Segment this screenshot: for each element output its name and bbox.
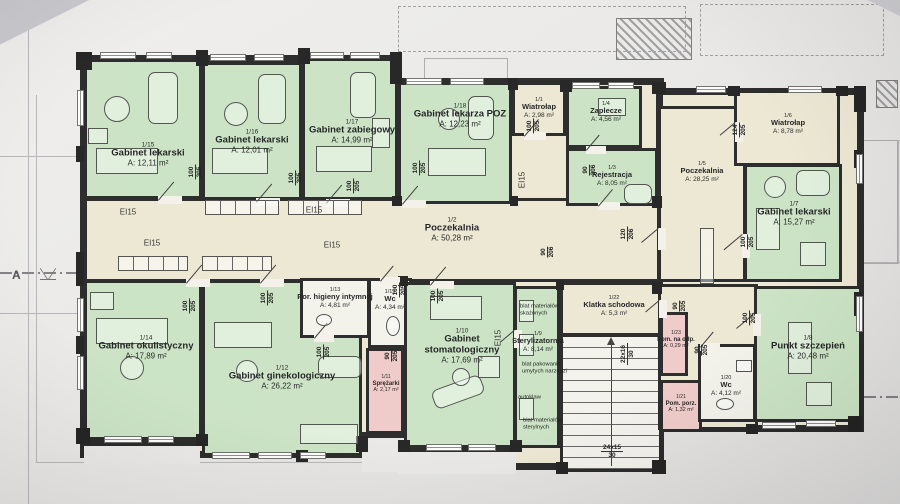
wall-pillar [854,86,866,112]
dimension-numerator: 100 [392,283,400,298]
dimension-denominator: 205 [741,123,748,138]
exterior-landing [424,58,508,80]
dimension-denominator: 205 [439,289,446,304]
dimension-numerator: 90 [384,350,392,361]
dimension-numerator: 100 [346,179,354,194]
window [77,298,84,332]
wall-pillar [298,48,310,64]
dimension-denominator: 205 [703,344,710,355]
window-mullion [105,439,141,440]
furniture-ellipse [386,316,400,336]
window [258,452,292,459]
furniture-rect [96,148,158,174]
window [104,436,142,443]
dimension-label: 100205 [740,235,756,250]
steril-note: blat materiałów sterylnych [523,417,577,430]
window [212,452,250,459]
door-opening [659,300,667,318]
window-mullion [427,447,461,448]
furniture-circle [120,356,144,380]
dimension-denominator: 205 [401,283,408,298]
window-mullion [859,155,860,183]
room-1-4 [566,86,642,148]
furniture-rect [788,322,812,374]
dimension-numerator: 100 [740,235,748,250]
fire-rating-label: EI15 [144,239,160,248]
chimney-hatch [616,18,692,60]
furniture-bench [118,256,188,271]
furniture-round [258,74,286,124]
furniture-rect [519,334,534,356]
wall-pillar [392,196,402,206]
dimension-numerator: 100 [288,171,296,186]
wall-pillar [836,86,848,96]
site-line [898,140,899,264]
window-mullion [80,357,81,389]
dimension-numerator: 120 [620,227,628,242]
window [77,356,84,390]
dimension-numerator: 90 [540,246,548,257]
dimension-numerator: 90 [672,300,680,311]
dimension-denominator: 205 [355,179,362,194]
window [350,52,380,59]
window [310,52,344,59]
wall-pillar [652,196,662,208]
dimension-numerator: 100 [742,311,750,326]
furniture-rect [214,322,272,348]
dimension-numerator: 100 [430,289,438,304]
dimension-denominator: 205 [297,171,304,186]
window-mullion [101,55,135,56]
steril-note: blat materiałów skażonych [520,303,574,316]
window [572,82,600,89]
window-mullion [789,89,821,90]
furniture-ellipse [716,398,734,410]
room-1-18 [398,82,512,204]
wall-pillar [196,50,208,66]
site-line [0,156,80,157]
dimension-numerator: 24x15 [601,444,623,452]
window-mullion [255,57,283,58]
site-line [36,95,37,463]
fire-rating-label: EI15 [494,330,503,346]
room-1-6 [734,90,840,166]
dimension-label: 90205 [694,344,710,355]
furniture-bench [288,200,362,215]
room-1-23 [660,312,688,376]
photo-corner-shadow [860,0,900,20]
wall-pillar [556,280,564,290]
window [762,422,796,429]
dimension-numerator: 100 [526,119,534,134]
dimension-denominator: 205 [535,119,542,134]
window [210,54,246,61]
dimension-label: 100205 [260,291,276,306]
furniture-bench [202,256,272,271]
window [100,52,136,59]
dimension-denominator: 205 [191,299,198,314]
wall-pillar [652,282,662,294]
wall-pillar [652,82,666,94]
furniture-rect [598,98,626,116]
dimension-label: 100205 [288,171,304,186]
furniture-rect [478,356,500,378]
dimension-label: 120206 [620,227,636,242]
furniture-rect [300,424,358,444]
furniture-round [350,72,376,118]
dimension-label: 100205 [316,345,332,360]
room-1-16 [202,62,302,200]
window-mullion [351,55,379,56]
wall-pillar [746,424,758,434]
furniture-circle [764,176,786,198]
dimension-denominator: 205 [421,161,428,176]
furniture-bench [205,200,279,215]
furniture-rect [700,228,714,284]
photo-corner-shadow [0,0,96,48]
dimension-denominator: 30 [629,343,636,365]
roof-dashed-outline [700,4,884,56]
furniture-rect [756,208,780,250]
wall-pillar [556,462,568,474]
fire-rating-label: EI15 [306,206,322,215]
section-marker-triangle [40,268,56,280]
window [300,452,326,459]
window-mullion [763,425,795,426]
dimension-numerator: 124 [732,123,740,138]
window [426,444,462,451]
dimension-denominator: 205 [751,311,758,326]
window-mullion [301,455,325,456]
window [450,78,484,85]
dimension-denominator: 205 [269,291,276,306]
furniture-circle [224,102,248,126]
wall-pillar [652,460,666,474]
dimension-label: 90206 [582,164,598,175]
wall-pillar [76,428,90,444]
window-mullion [807,423,835,424]
dimension-label: 100205 [188,165,204,180]
floor-plan-photo: 1002051002051002051002051002059020690206… [0,0,900,504]
wall-pillar [510,440,522,452]
window-mullion [213,455,249,456]
fire-rating-label: EI15 [324,241,340,250]
furniture-rect [212,148,268,174]
dimension-denominator: 205 [393,350,400,361]
window-mullion [609,85,633,86]
stair-arrow-head [607,337,615,345]
furniture-rect [806,382,832,406]
wall-pillar [76,252,84,286]
window [148,436,174,443]
dimension-label: 100205 [392,283,408,298]
furniture-round [796,170,830,196]
window-mullion [149,439,173,440]
window [856,296,863,332]
window [468,444,496,451]
window [806,420,836,427]
wall-pillar [76,146,84,162]
furniture-round [624,184,652,204]
dimension-denominator: 206 [629,227,636,242]
furniture-rect [736,360,752,372]
furniture-rect [96,318,168,344]
wall-pillar [398,440,410,452]
dimension-label: 90205 [384,350,400,361]
site-line [28,0,29,504]
window [608,82,634,89]
window-mullion [311,55,343,56]
window-mullion [859,297,860,331]
door-opening [658,228,666,250]
dimension-denominator: 205 [325,345,332,360]
furniture-rect [88,128,108,144]
dimension-denominator: 30 [601,453,623,460]
dimension-label: 90206 [540,246,556,257]
dimension-numerator: 100 [260,291,268,306]
wall-pillar [76,52,92,70]
wall-pillar [728,86,740,96]
steril-note: blat pakowania umytych narzędzi [522,361,578,374]
window [146,52,172,59]
dimension-denominator: 206 [591,164,598,175]
wall-pillar [196,434,208,446]
site-line [0,313,84,314]
room-1-21 [660,380,702,432]
section-marker-a: A [12,268,21,282]
room-1-13 [300,278,370,338]
window-mullion [697,89,725,90]
furniture-rect [316,146,372,172]
dimension-numerator: 100 [182,299,190,314]
dimension-numerator: 22x16 [620,343,628,365]
window-mullion [80,299,81,331]
furniture-rect [428,148,486,176]
wall-pillar [508,78,518,90]
dimension-label: 124205 [732,123,748,138]
dimension-numerator: 90 [694,344,702,355]
dimension-label: 22x1630 [620,343,636,365]
window-mullion [407,81,441,82]
furniture-circle [236,360,258,382]
dimension-label: 100205 [346,179,362,194]
window [406,78,442,85]
dimension-numerator: 100 [412,161,420,176]
furniture-rect [90,292,114,310]
wall-pillar [510,196,518,206]
window [254,54,284,61]
furniture-round [468,96,494,140]
furniture-ellipse [316,314,332,326]
window [856,154,863,184]
floor-plan: 1002051002051002051002051002059020690206… [0,0,900,504]
dimension-label: 100205 [526,119,542,134]
furniture-circle [452,368,470,386]
window [696,86,726,93]
dimension-label: 100205 [742,311,758,326]
dimension-label: 100205 [430,289,446,304]
furniture-round [148,72,178,124]
wall-pillar [390,52,402,84]
window-mullion [259,455,291,456]
dimension-denominator: 205 [197,165,204,180]
furniture-rect [800,242,826,266]
dimension-label: 100205 [412,161,428,176]
window-mullion [469,447,495,448]
dimension-denominator: 206 [549,246,556,257]
wall-pillar [76,336,84,354]
window [788,86,822,93]
fire-rating-label: EI15 [518,172,527,188]
fire-rating-label: EI15 [120,208,136,217]
window [77,90,84,126]
furniture-rect [372,118,390,148]
furniture-circle [438,108,460,130]
building-notch-patch [84,440,200,464]
dimension-denominator: 205 [749,235,756,250]
room-1-20 [698,344,756,422]
wall-pillar [560,80,572,92]
chimney-hatch [876,80,898,108]
window-mullion [147,55,171,56]
dimension-numerator: 90 [582,164,590,175]
dimension-label: 100205 [182,299,198,314]
steril-note: autoklaw [518,395,564,402]
wall-pillar [848,416,862,432]
section-line [864,396,900,398]
dimension-denominator: 205 [681,300,688,311]
dimension-numerator: 100 [316,345,324,360]
window-mullion [451,81,483,82]
window-mullion [573,85,599,86]
window-mullion [80,91,81,125]
furniture-circle [104,96,130,122]
dimension-label: 24x1530 [601,444,623,460]
dimension-numerator: 100 [188,165,196,180]
window-mullion [211,57,245,58]
dimension-label: 90205 [672,300,688,311]
